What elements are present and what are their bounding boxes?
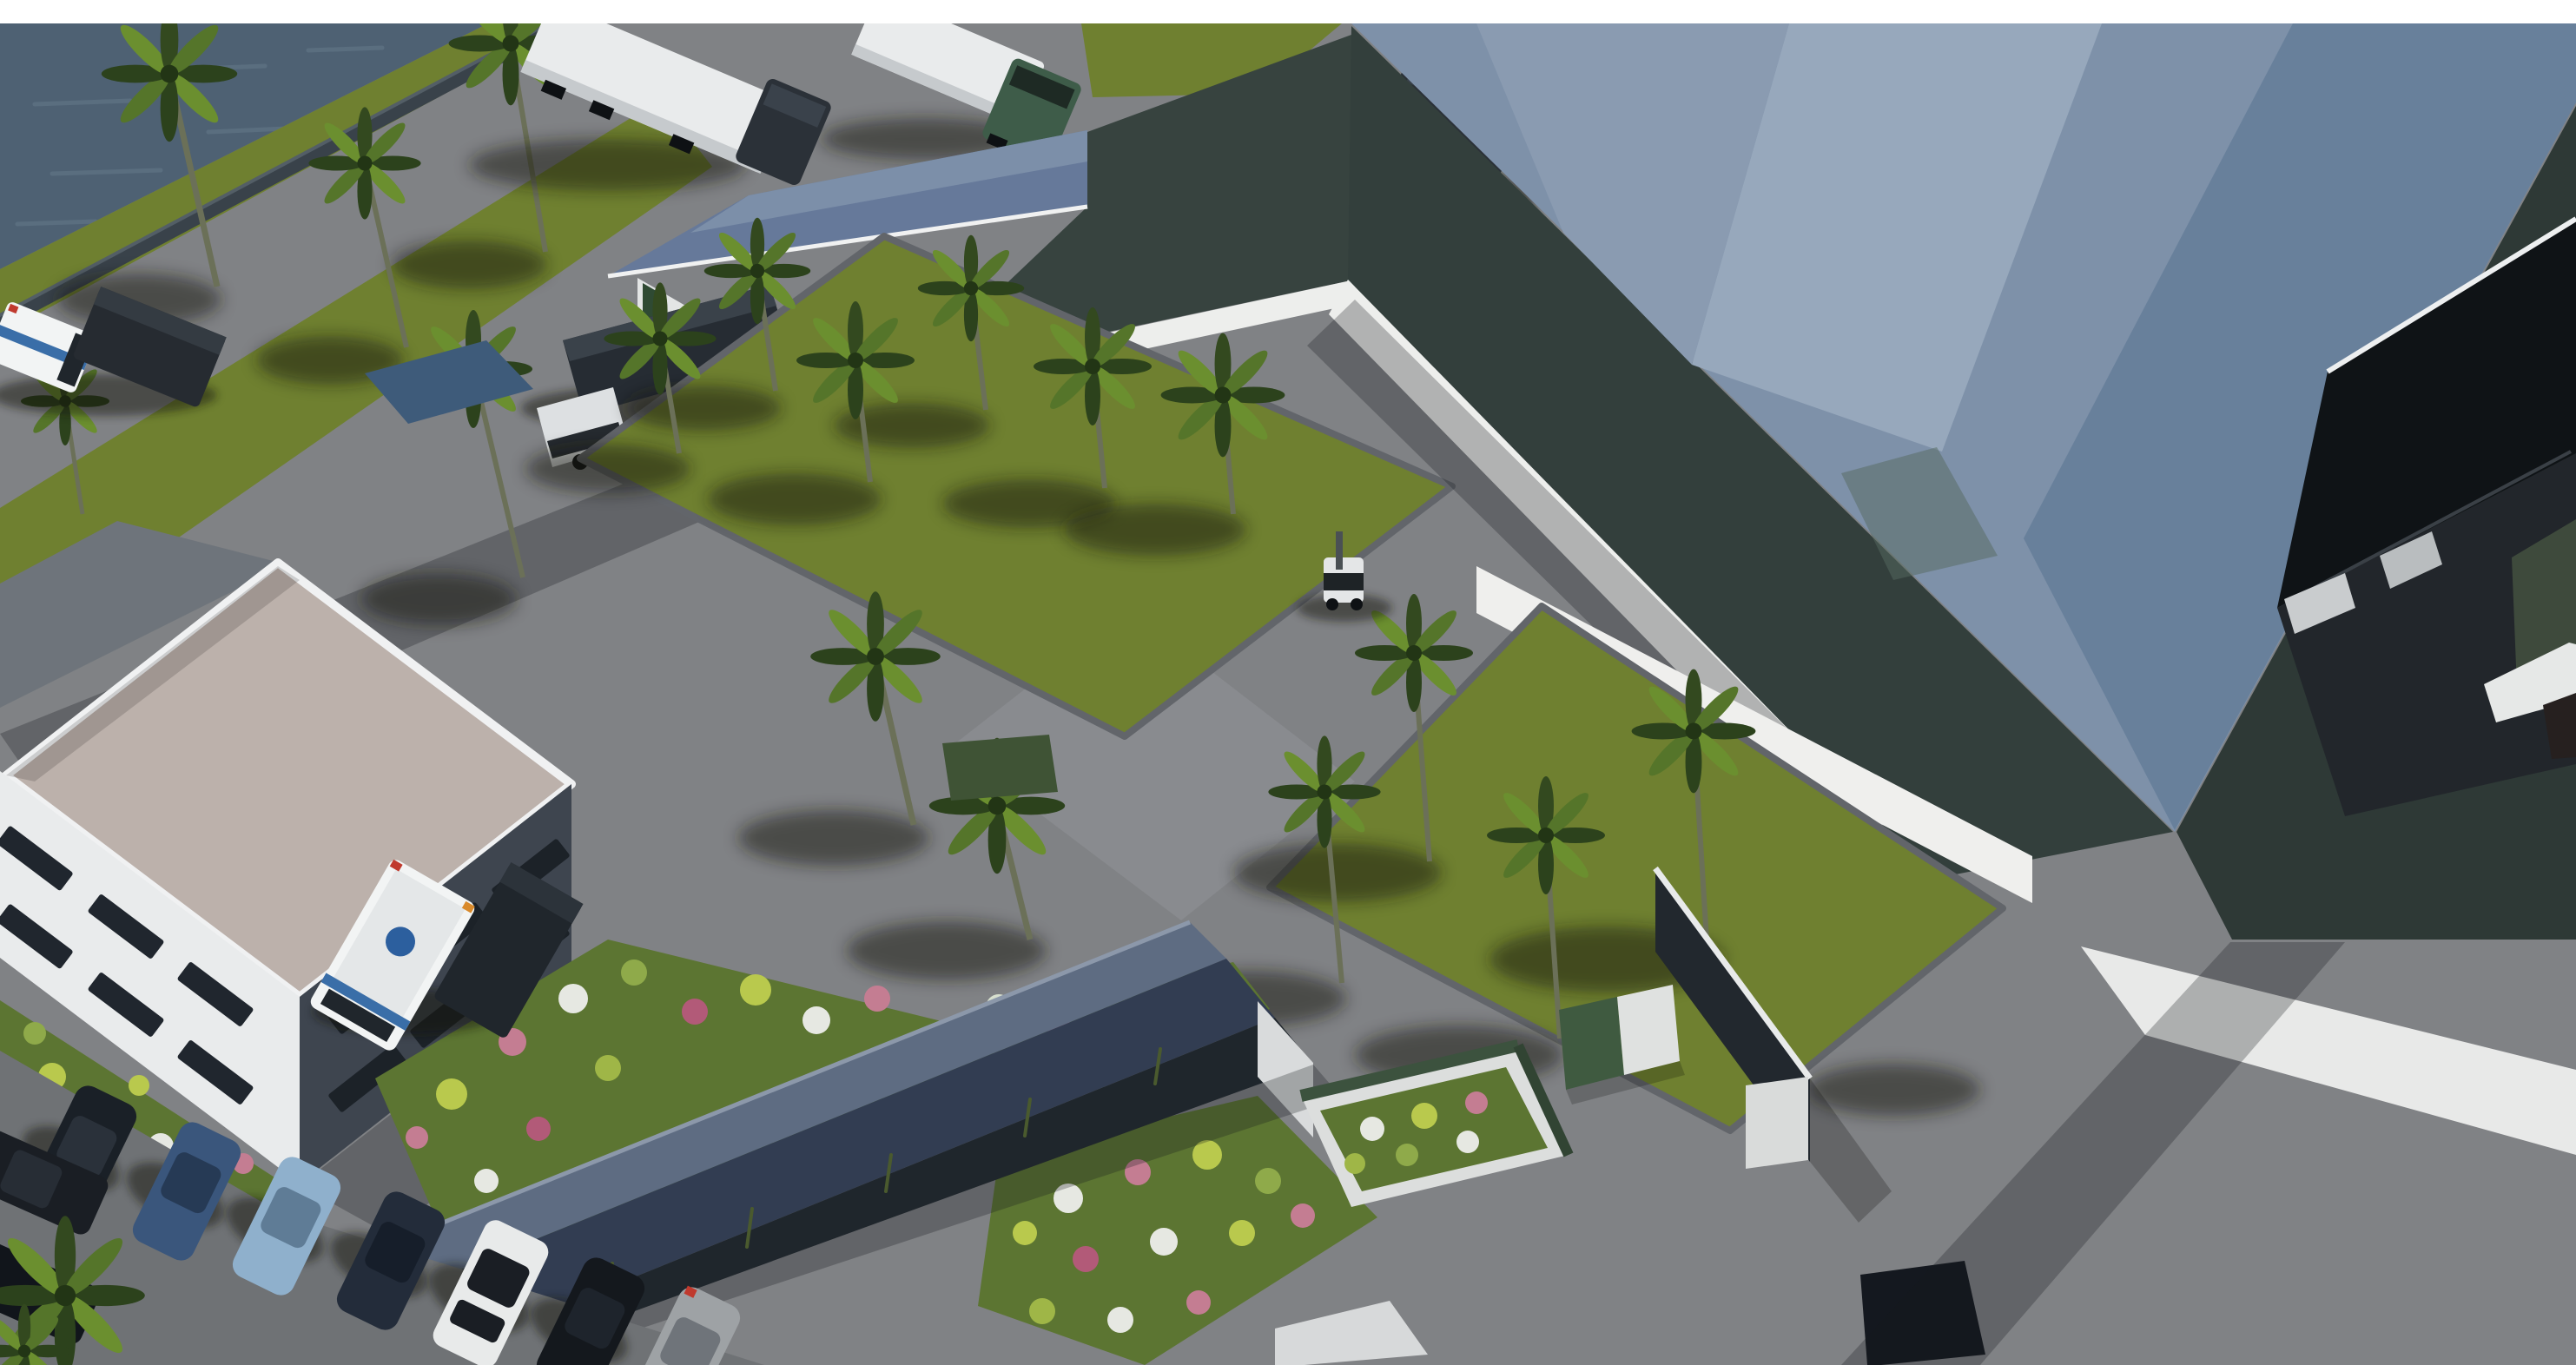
flower [864, 986, 890, 1012]
flower [740, 974, 771, 1006]
flower [1013, 1221, 1037, 1245]
flower [621, 959, 647, 986]
top-letterbox [0, 0, 2576, 23]
flower [526, 1117, 551, 1141]
flower [1411, 1103, 1437, 1129]
flower [1029, 1298, 1055, 1324]
green-pad [942, 735, 1058, 801]
flower [1229, 1220, 1255, 1246]
flower [1360, 1117, 1384, 1141]
flower [1291, 1203, 1315, 1228]
flower [595, 1055, 621, 1081]
flower [1150, 1228, 1178, 1256]
flower [1344, 1153, 1365, 1174]
flower [406, 1126, 428, 1149]
flower [1107, 1307, 1133, 1333]
flower [1456, 1131, 1479, 1153]
flower [23, 1022, 46, 1045]
render-viewport [0, 0, 2576, 1365]
flower [1465, 1091, 1488, 1114]
flower [1073, 1246, 1099, 1272]
flower [682, 999, 708, 1025]
flower [1255, 1168, 1281, 1194]
flower [436, 1078, 467, 1110]
flower [1186, 1290, 1211, 1315]
flower [803, 1006, 830, 1034]
flower [1396, 1144, 1418, 1166]
flower [474, 1169, 499, 1193]
flower [558, 984, 588, 1013]
flower [129, 1075, 149, 1096]
